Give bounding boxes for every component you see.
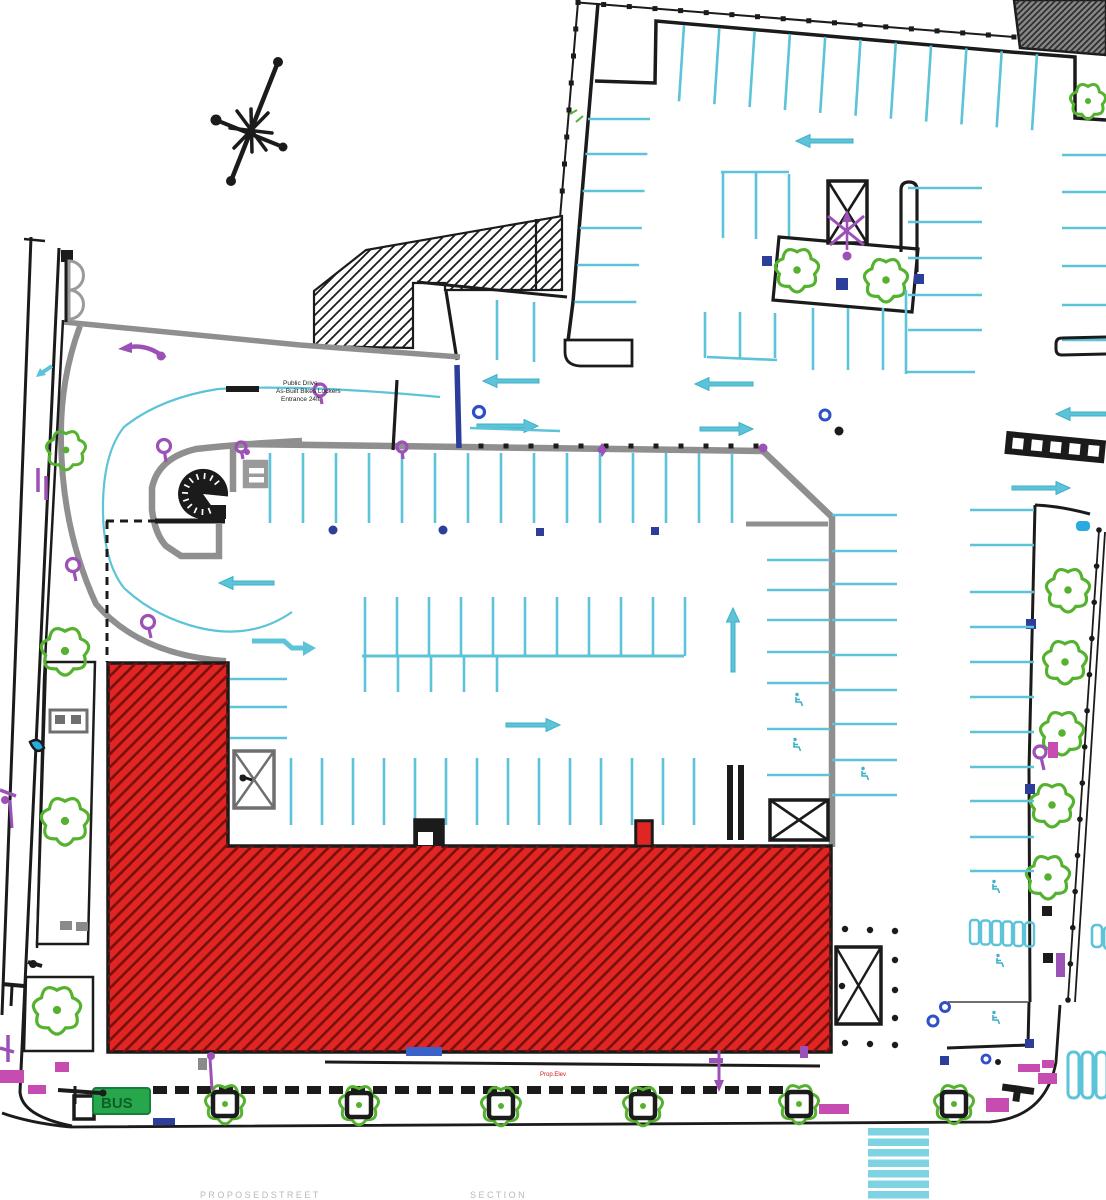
svg-text:Prop.Elev: Prop.Elev	[540, 1072, 566, 1078]
svg-text:BUS: BUS	[101, 1095, 133, 1112]
svg-text:S E C T I O N: S E C T I O N	[470, 1190, 525, 1200]
svg-text:P R O P O S E D S T R E E T: P R O P O S E D S T R E E T	[200, 1190, 319, 1200]
svg-text:Public Drive: Public Drive	[283, 380, 318, 387]
svg-text:As-Built Bikes Lockers: As-Built Bikes Lockers	[276, 388, 341, 395]
svg-text:Entrance 24ft: Entrance 24ft	[281, 396, 320, 403]
